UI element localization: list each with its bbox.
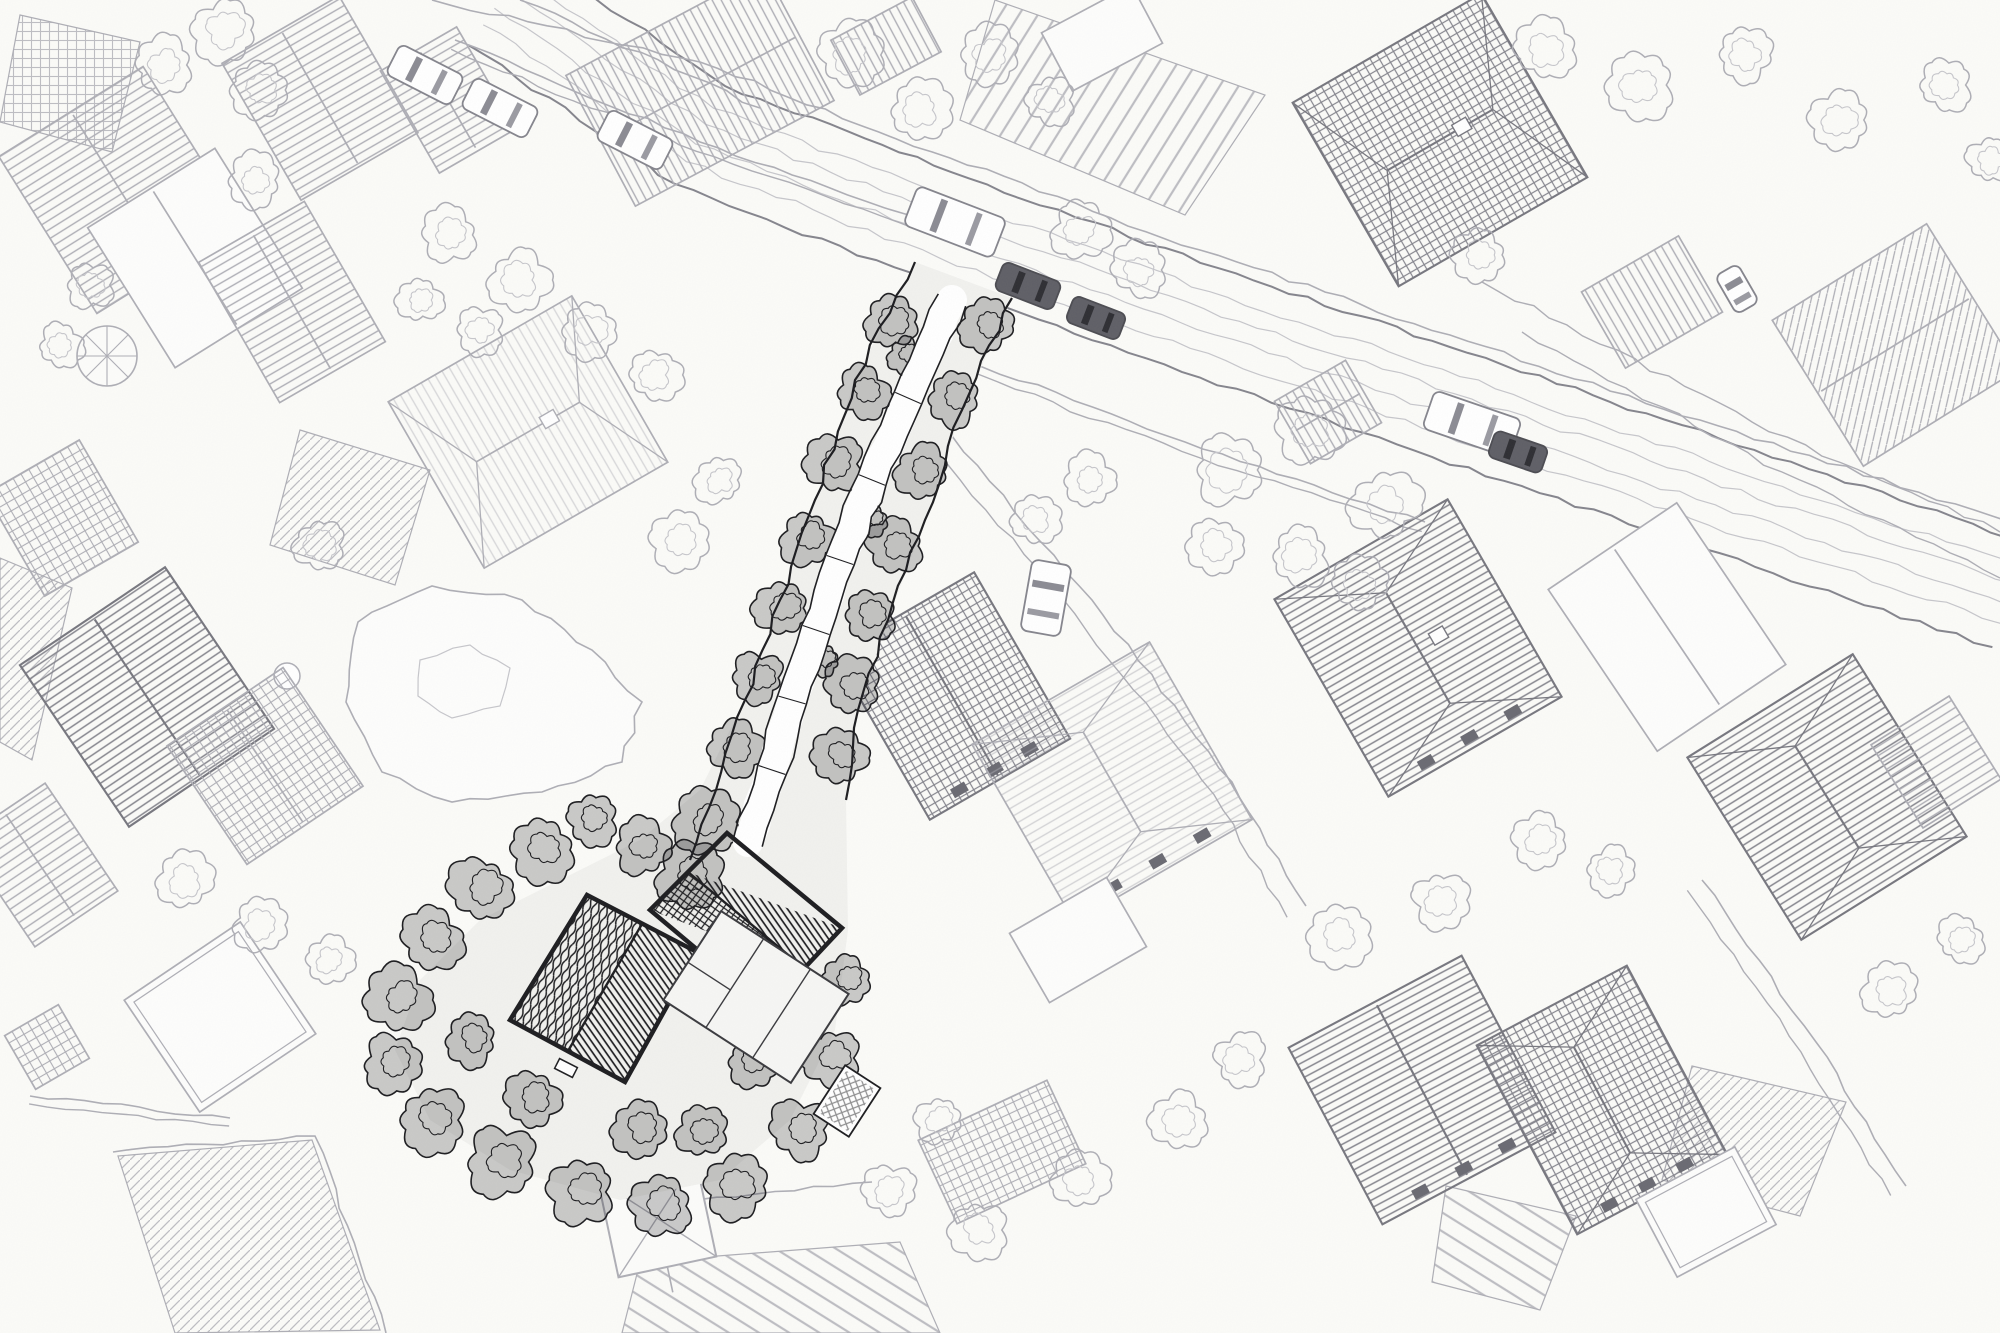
aerial-sketch-page <box>0 0 2000 1333</box>
aerial-sketch <box>0 0 2000 1333</box>
paper-grain <box>0 0 2000 1333</box>
